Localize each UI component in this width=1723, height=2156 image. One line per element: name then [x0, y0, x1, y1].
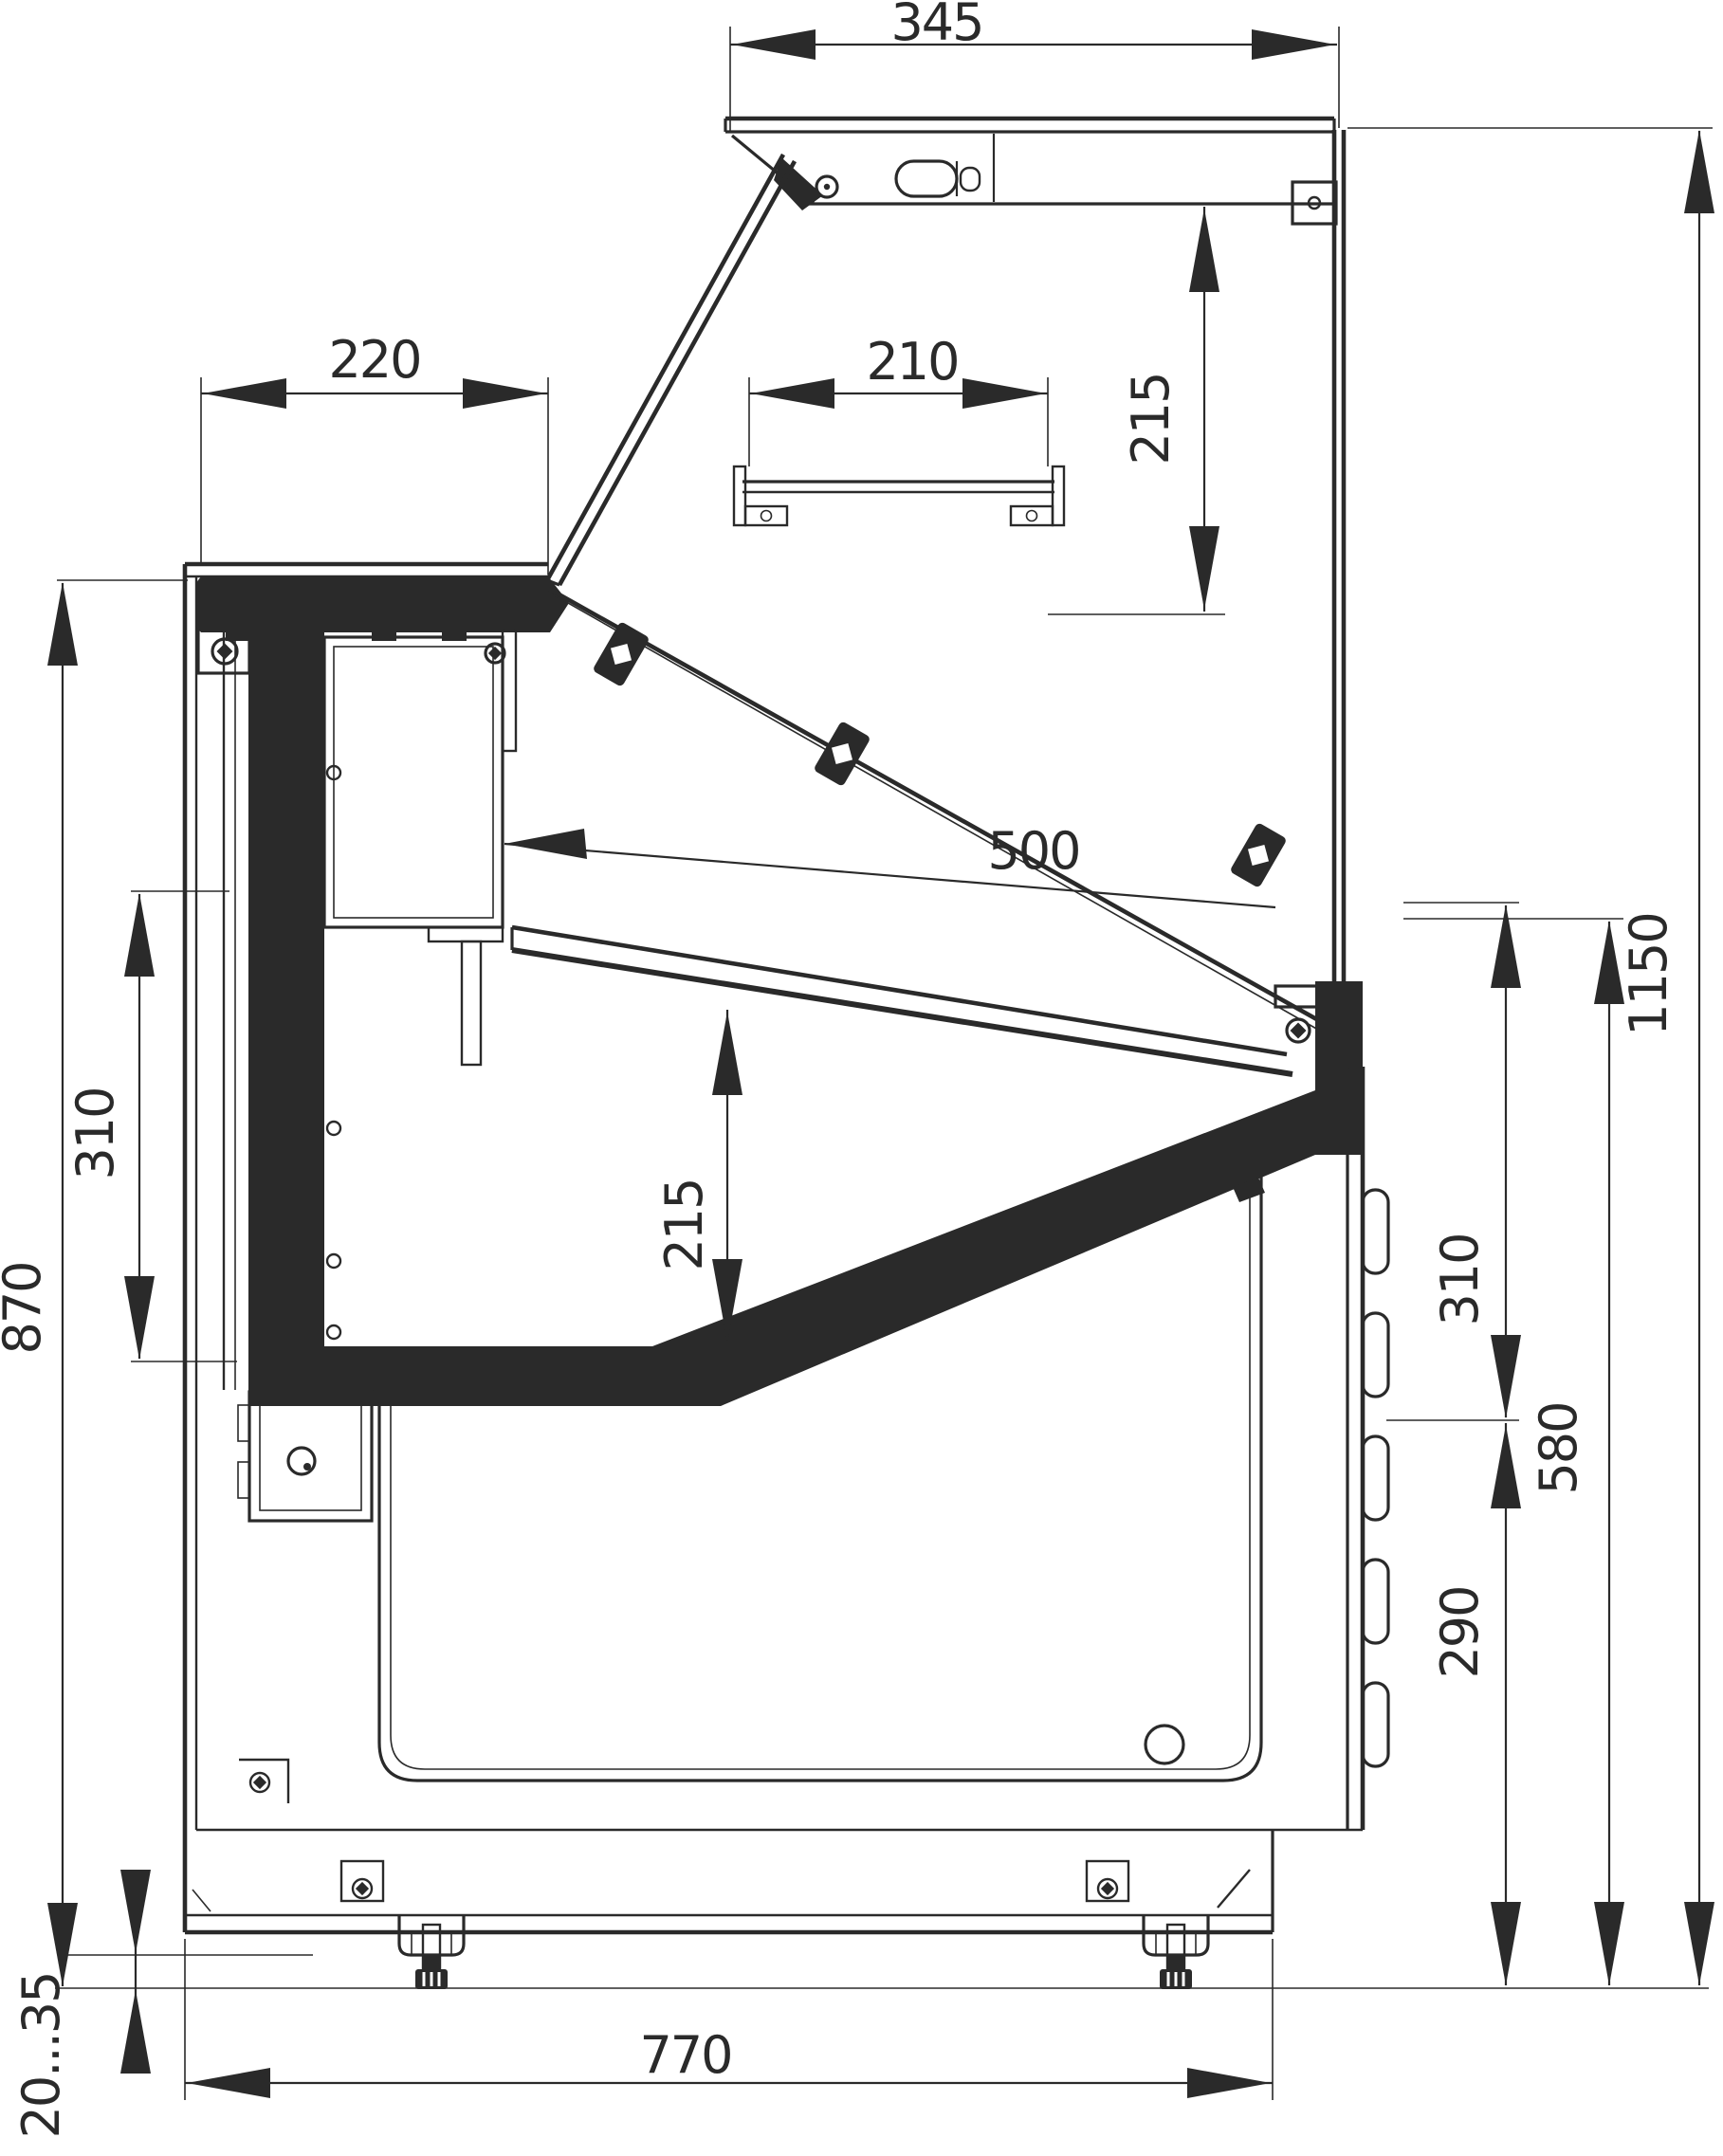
louver-slot	[1363, 1683, 1388, 1766]
evaporator-housing	[324, 637, 503, 927]
foot-stem	[1168, 1955, 1183, 1969]
evaporator-side-strip	[503, 628, 516, 751]
tank-outer	[379, 1155, 1261, 1781]
dim-label-215-inner: 215	[654, 1178, 714, 1270]
dim-label-290: 290	[1430, 1586, 1490, 1678]
bracket-hole-icon	[1027, 511, 1037, 521]
technical-drawing: 345 220 210 215 500 215 870 310 20...35 …	[0, 0, 1723, 2156]
dim-label-310-left: 310	[65, 1087, 125, 1179]
machine-tab	[238, 1462, 249, 1498]
machine-box	[238, 1392, 372, 1521]
dim-line-500	[504, 844, 1275, 907]
screw-icon	[327, 1254, 340, 1268]
screw-icon	[327, 1325, 340, 1339]
inner-glass-line	[547, 588, 1320, 1021]
dim-label-1150: 1150	[1619, 913, 1678, 1035]
drawing-page: 345 220 210 215 500 215 870 310 20...35 …	[0, 0, 1723, 2156]
dim-label-500: 500	[987, 821, 1079, 881]
glass-pane-line	[547, 155, 783, 580]
compressor-icon	[288, 1448, 315, 1474]
dim-label-870: 870	[0, 1262, 52, 1354]
foot-channel-slots	[412, 1934, 451, 1955]
shelf-bracket-foot	[745, 506, 787, 525]
shelf	[734, 466, 1064, 525]
screw-nut-icon	[253, 1776, 266, 1789]
glass-clamp-icon	[813, 721, 871, 787]
machine-housing	[249, 1392, 372, 1521]
air-duct	[248, 981, 1363, 1406]
foot-channel	[399, 1915, 464, 1955]
louver-slot	[1363, 1313, 1388, 1397]
front-glass	[1334, 130, 1344, 994]
screw-icon	[327, 1122, 340, 1135]
duct-diagonal	[652, 1090, 1315, 1406]
foot-stem	[424, 1955, 439, 1969]
canopy	[725, 119, 1336, 224]
adjustable-foot-left	[399, 1915, 464, 1989]
duct-bottom	[248, 1346, 721, 1406]
dim-label-345: 345	[890, 0, 982, 52]
inner-glass-line2	[555, 595, 1318, 1030]
back-column	[248, 578, 340, 1348]
drain-tube	[462, 941, 481, 1065]
foot-channel	[1144, 1915, 1208, 1955]
louver-slot	[1363, 1436, 1388, 1520]
compressor-icon-dot	[303, 1463, 311, 1471]
base-tank	[239, 1155, 1261, 1803]
case-structure	[55, 119, 1709, 1989]
screw-nut-icon	[1101, 1882, 1114, 1895]
screw-nut-icon	[488, 647, 502, 660]
hinge-pivot-center	[824, 184, 830, 190]
sloped-glass-upper	[547, 155, 795, 585]
drain-flange	[429, 927, 503, 941]
dim-label-580: 580	[1529, 1402, 1588, 1494]
screw-nut-icon	[217, 644, 233, 660]
right-front-panel	[1347, 1067, 1388, 1830]
dim-label-220: 220	[328, 330, 420, 390]
screw-nut-icon	[1291, 1023, 1307, 1039]
evaporator-housing-inner	[334, 647, 493, 918]
adjustable-foot-right	[1144, 1915, 1208, 1989]
insulation-column	[248, 578, 324, 1348]
shelf-bracket-foot	[1011, 506, 1053, 525]
dim-label-20-35: 20...35	[11, 1973, 71, 2139]
lamp-end-cap-icon	[961, 168, 980, 191]
plinth	[185, 1830, 1363, 1932]
louver-slot	[1363, 1190, 1388, 1273]
shelf-bracket	[1053, 466, 1064, 525]
bracket-hole-icon	[761, 511, 772, 521]
shelf-bracket	[734, 466, 745, 525]
plinth-chamfer	[192, 1890, 211, 1911]
lamp-tube-icon	[896, 161, 957, 196]
glass-clamp-icon	[1229, 822, 1287, 888]
evaporator-unit	[324, 628, 516, 1065]
louver-slot	[1363, 1560, 1388, 1643]
foot-channel-slots	[1156, 1934, 1196, 1955]
dim-label-210: 210	[866, 332, 958, 392]
dim-label-215-top: 215	[1121, 373, 1181, 465]
tank-inner	[391, 1166, 1250, 1769]
drain-hole-icon	[1146, 1726, 1183, 1763]
deck-bottom	[512, 950, 1292, 1074]
glass-pane-line	[559, 161, 795, 585]
machine-tab	[238, 1405, 249, 1441]
screw-nut-icon	[356, 1882, 369, 1895]
glass-clamp-icon	[592, 621, 650, 687]
machine-housing-inner	[260, 1402, 361, 1510]
worktop-and-left-wall	[185, 564, 569, 1932]
dim-label-770: 770	[639, 2025, 731, 2085]
dim-label-310-right: 310	[1430, 1233, 1490, 1325]
sloped-glass-inner	[547, 588, 1320, 1030]
plinth-chamfer	[1218, 1870, 1250, 1908]
